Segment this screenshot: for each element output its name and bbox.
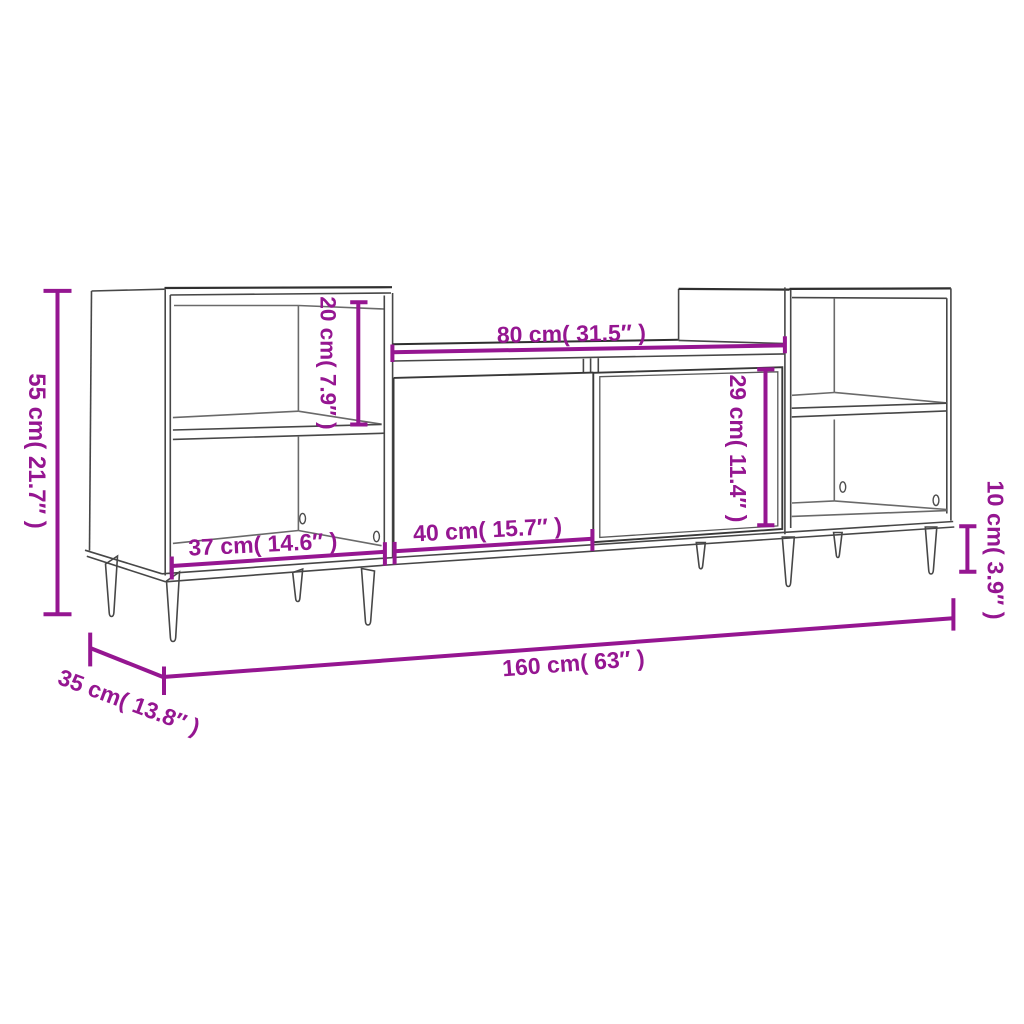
svg-text:29 cm( 11.4″ ): 29 cm( 11.4″ )	[725, 375, 751, 523]
svg-text:20 cm( 7.9″ ): 20 cm( 7.9″ )	[316, 296, 341, 429]
svg-text:80 cm( 31.5″ ): 80 cm( 31.5″ )	[497, 319, 647, 348]
svg-text:55 cm( 21.7″ ): 55 cm( 21.7″ )	[23, 373, 50, 529]
svg-text:10 cm( 3.9″ ): 10 cm( 3.9″ )	[983, 480, 1009, 619]
